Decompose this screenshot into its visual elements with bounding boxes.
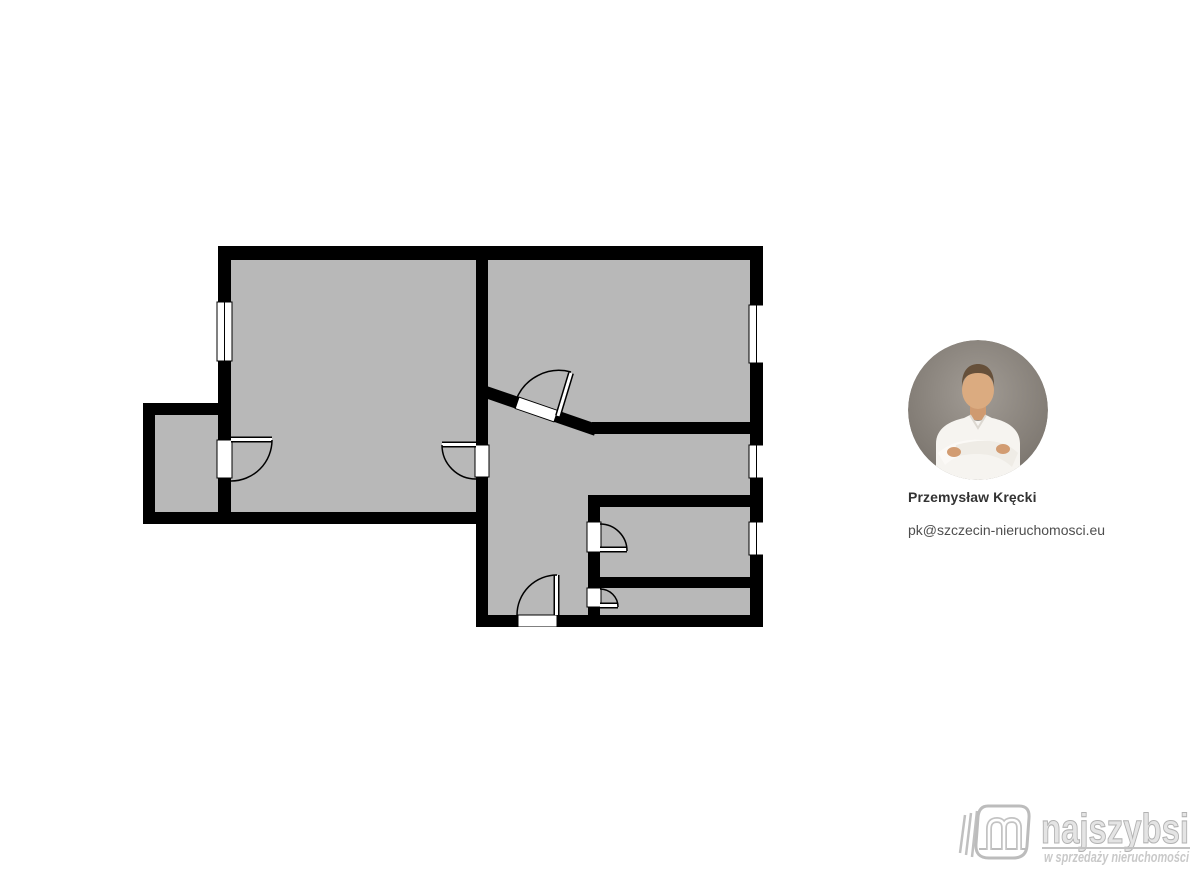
door-opening [587,588,601,607]
wall [143,403,155,524]
agent-name: Przemysław Kręcki [908,489,1037,505]
brand-tagline: w sprzedaży nieruchomości [1044,849,1190,866]
wall [143,403,231,415]
wall [218,246,231,524]
wall [476,477,488,627]
logo-m-book-icon [957,802,1035,868]
door-opening [217,440,232,478]
agent-photo [908,340,1048,480]
wall [588,607,600,627]
page: Przemysław Kręcki pk@szczecin-nieruchomo… [0,0,1200,878]
door-opening [475,445,489,477]
room-floor [218,246,488,524]
brand-logo: najszybsi w sprzedaży nieruchomości [957,799,1200,869]
door-opening [518,615,557,627]
logo-wordmark: najszybsi w sprzedaży nieruchomości [1040,799,1200,869]
wall [476,246,488,445]
wall [218,246,763,260]
wall [588,495,763,507]
brand-name: najszybsi [1041,805,1189,852]
door-opening [587,522,601,552]
floor-plan [143,246,763,627]
wall [592,422,750,434]
wall [588,577,763,588]
agent-avatar-illustration [908,340,1048,480]
wall [143,512,488,524]
wall [750,246,763,627]
wall [588,495,600,522]
agent-email: pk@szczecin-nieruchomosci.eu [908,522,1105,538]
